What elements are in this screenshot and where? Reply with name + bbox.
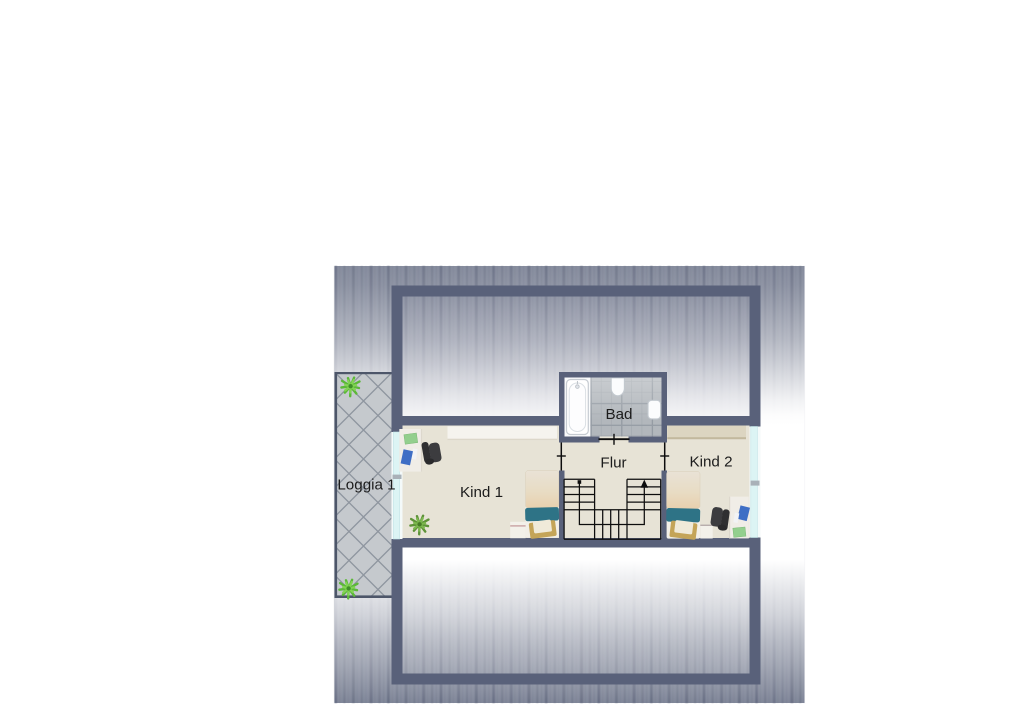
svg-text:Bad: Bad [605,406,632,423]
svg-text:Loggia 1: Loggia 1 [337,476,395,493]
svg-text:Flur: Flur [600,455,626,472]
svg-text:Kind 1: Kind 1 [460,484,503,501]
svg-text:Kind 2: Kind 2 [689,453,732,470]
